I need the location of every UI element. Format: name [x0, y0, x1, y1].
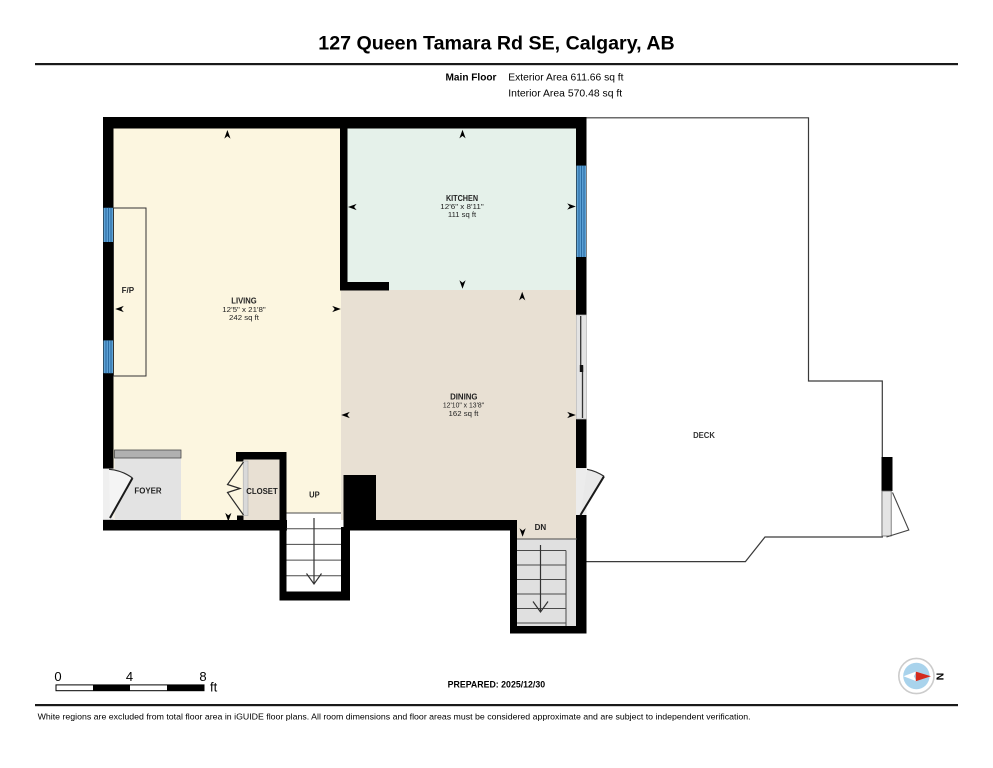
svg-text:F/P: F/P — [122, 286, 135, 295]
svg-text:FOYER: FOYER — [134, 487, 161, 496]
svg-text:DN: DN — [535, 523, 547, 532]
svg-text:White regions are excluded fro: White regions are excluded from total fl… — [38, 712, 751, 722]
svg-text:ft: ft — [210, 680, 218, 695]
svg-text:4: 4 — [126, 669, 133, 684]
svg-text:8: 8 — [199, 669, 206, 684]
svg-text:111 sq ft: 111 sq ft — [448, 210, 476, 219]
svg-text:PREPARED: 2025/12/30: PREPARED: 2025/12/30 — [448, 680, 546, 690]
svg-text:242 sq ft: 242 sq ft — [229, 313, 259, 322]
svg-text:0: 0 — [54, 669, 61, 684]
svg-text:Main Floor: Main Floor — [446, 72, 497, 84]
svg-text:162 sq ft: 162 sq ft — [449, 409, 479, 418]
svg-text:Exterior Area 611.66 sq ft: Exterior Area 611.66 sq ft — [508, 72, 623, 84]
svg-text:Interior Area 570.48 sq ft: Interior Area 570.48 sq ft — [508, 88, 622, 100]
svg-text:N: N — [934, 673, 946, 681]
svg-text:127 Queen Tamara Rd SE, Calgar: 127 Queen Tamara Rd SE, Calgary, AB — [318, 33, 674, 55]
svg-text:UP: UP — [309, 491, 320, 500]
svg-text:CLOSET: CLOSET — [246, 487, 278, 496]
svg-text:DECK: DECK — [693, 431, 715, 440]
